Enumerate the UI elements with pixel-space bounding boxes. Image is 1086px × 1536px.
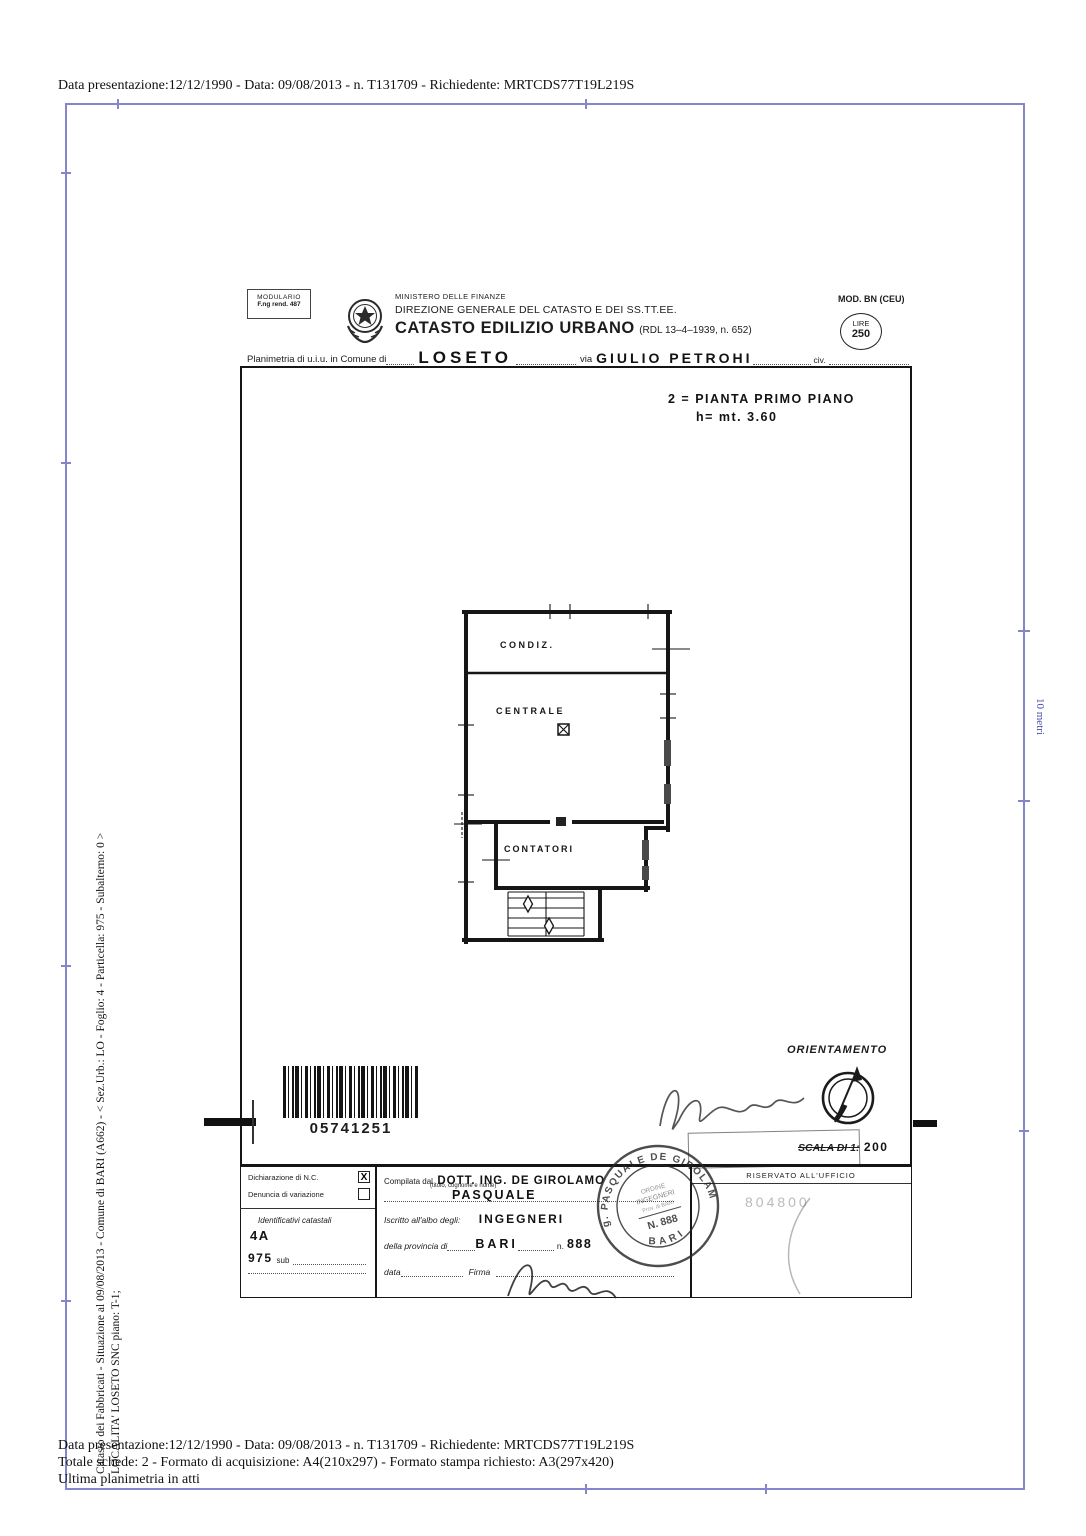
floor-plan-drawing: CONDIZ. CENTRALE CONTATORI	[452, 592, 702, 952]
provincia-label: della provincia di	[384, 1241, 447, 1251]
lire-value: 250	[841, 328, 881, 340]
room-label-centrale: CENTRALE	[496, 706, 565, 716]
scale-bar-label: 10 metri	[1034, 698, 1046, 735]
barcode	[283, 1066, 419, 1118]
planimetria-row: Planimetria di u.i.u. in Comune di LOSET…	[247, 346, 909, 365]
frame-tick	[61, 1300, 71, 1302]
identificativi-label: Identificativi catastali	[258, 1216, 331, 1225]
scala-row: SCALA DI 1: 200	[798, 1138, 888, 1156]
ministry-header: MINISTERO DELLE FINANZE DIREZIONE GENERA…	[395, 292, 752, 338]
frame-tick	[585, 99, 587, 109]
particella-row: 975 sub	[248, 1246, 366, 1265]
frame-tick	[765, 1484, 767, 1494]
barcode-number: 05741251	[283, 1120, 419, 1137]
frame-top-line	[65, 103, 1025, 105]
blank-dotted-line	[248, 1266, 366, 1274]
riservato-underline	[692, 1183, 911, 1184]
albo-label: Iscritto all'albo degli:	[384, 1215, 460, 1225]
frame-tick	[1019, 1130, 1029, 1132]
form-title: CATASTO EDILIZIO URBANO	[395, 319, 635, 337]
firma-label: Firma	[469, 1267, 491, 1277]
comune-value: LOSETO	[418, 351, 512, 365]
bottom-metadata-line3: Ultima planimetria in atti	[58, 1472, 200, 1488]
compilata-label: Compilata dal	[384, 1177, 433, 1186]
frame-bottom-line	[65, 1488, 1025, 1490]
bottom-metadata-line1: Data presentazione:12/12/1990 - Data: 09…	[58, 1438, 634, 1454]
state-emblem-logo	[340, 292, 390, 348]
dichiarazione-label: Dichiarazione di N.C.	[248, 1173, 318, 1182]
room-label-contatori: CONTATORI	[504, 844, 574, 854]
modulario-box: MODULARIO F.ng rend. 487	[247, 289, 311, 319]
frame-right-line	[1023, 103, 1025, 1489]
left-col-divider	[240, 1208, 375, 1209]
via-label: via	[580, 354, 592, 365]
frame-tick	[61, 172, 71, 174]
frame-tick	[585, 1484, 587, 1494]
scala-label: SCALA DI 1:	[798, 1142, 859, 1154]
planimetria-label: Planimetria di u.i.u. in Comune di	[247, 354, 386, 365]
bottom-metadata-line2: Totale schede: 2 - Formato di acquisizio…	[58, 1455, 614, 1471]
table-divider-1	[375, 1166, 377, 1298]
modulario-label: MODULARIO	[248, 294, 310, 301]
scala-value: 200	[864, 1140, 889, 1154]
variazione-label: Denuncia di variazione	[248, 1190, 324, 1199]
civ-label: civ.	[814, 355, 826, 365]
registration-mark-left	[204, 1118, 256, 1126]
compass-icon	[812, 1058, 884, 1132]
modulario-number: F.ng rend. 487	[248, 301, 310, 308]
data-label: data	[384, 1267, 401, 1277]
frame-tick	[61, 462, 71, 464]
side-registry-line: Catasto dei Fabbricati - Situazione al 0…	[95, 833, 107, 1474]
scanned-cadastral-document-page: { "meta": { "top_line": "Data presentazi…	[0, 0, 1086, 1536]
plan-annotation: 2 = PIANTA PRIMO PIANO h= mt. 3.60	[668, 392, 855, 424]
annotation-line2: h= mt. 3.60	[696, 410, 855, 424]
particella-value: 975	[248, 1251, 273, 1265]
variazione-row: Denuncia di variazione	[248, 1188, 370, 1200]
registration-mark-left-tick	[252, 1100, 254, 1144]
foglio-value: 4A	[250, 1228, 270, 1243]
lire-label: LIRE	[841, 319, 881, 328]
room-label-condiz: CONDIZ.	[500, 640, 555, 650]
direzione-line: DIREZIONE GENERALE DEL CATASTO E DEI SS.…	[395, 304, 752, 316]
scale-bar-tick	[1018, 630, 1030, 632]
dichiarazione-row: Dichiarazione di N.C. X	[248, 1171, 370, 1183]
scale-bar-tick	[1018, 800, 1030, 802]
dichiarazione-checkbox: X	[358, 1171, 370, 1183]
lire-stamp-circle: LIRE 250	[840, 313, 882, 350]
form-title-reference: (RDL 13–4–1939, n. 652)	[639, 325, 752, 336]
top-metadata-line: Data presentazione:12/12/1990 - Data: 09…	[58, 78, 634, 94]
riservato-label: RISERVATO ALL'UFFICIO	[692, 1171, 910, 1180]
frame-tick	[117, 99, 119, 109]
ministry-line: MINISTERO DELLE FINANZE	[395, 292, 752, 301]
variazione-checkbox	[358, 1188, 370, 1200]
annotation-line1: 2 = PIANTA PRIMO PIANO	[668, 392, 855, 406]
riservato-faint-pen-mark	[750, 1190, 840, 1300]
sub-label: sub	[277, 1256, 290, 1265]
via-value: GIULIO PETROHI	[596, 352, 752, 365]
albo-value: INGEGNERI	[479, 1212, 564, 1226]
frame-tick	[61, 965, 71, 967]
orientamento-label: ORIENTAMENTO	[787, 1044, 887, 1056]
registration-mark-right	[913, 1120, 937, 1127]
albo-row: Iscritto all'albo degli: INGEGNERI	[384, 1210, 564, 1228]
mod-bn-label: MOD. BN (CEU)	[838, 294, 905, 304]
frame-left-line	[65, 103, 67, 1489]
